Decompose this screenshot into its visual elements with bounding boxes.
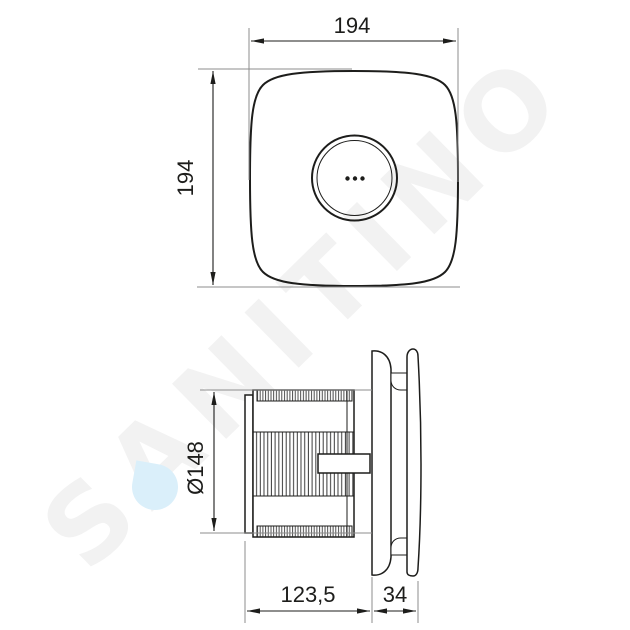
duct-back-rim — [245, 395, 253, 533]
front-view — [250, 71, 458, 286]
drawing-canvas: SANITINO — [0, 0, 630, 630]
dim-label-duct-diameter: Ø148 — [183, 441, 208, 495]
dimension-panel-depth: 34 — [374, 581, 418, 623]
grille-center-dots — [345, 176, 364, 180]
technical-drawing: 194 194 — [0, 0, 630, 630]
dim-label-front-width: 194 — [334, 13, 371, 38]
duct-rib-strip-bottom — [257, 526, 352, 537]
front-cover-profile — [407, 349, 421, 576]
dimension-front-width: 194 — [249, 13, 458, 182]
side-view — [245, 349, 421, 576]
dim-label-front-height: 194 — [173, 160, 198, 197]
dimension-body-depth: 123,5 — [245, 541, 372, 623]
dim-label-panel-depth: 34 — [383, 582, 407, 607]
cable-tab — [318, 454, 370, 473]
dim-label-body-depth: 123,5 — [280, 582, 335, 607]
mounting-plate-profile — [372, 351, 391, 575]
duct-rib-strip-top — [257, 390, 352, 401]
